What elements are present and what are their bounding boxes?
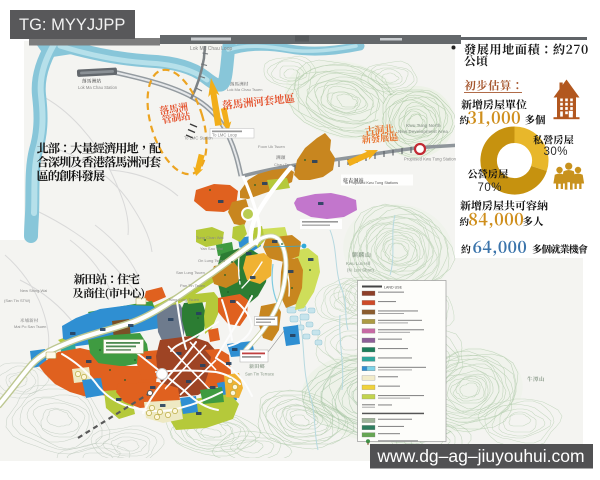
svg-text:New Development Area: New Development Area	[398, 129, 448, 134]
svg-text:(San Tin STW): (San Tin STW)	[4, 298, 31, 303]
svg-text:Proposed Kwu Tung Station: Proposed Kwu Tung Station	[404, 157, 457, 162]
svg-text:Tung Chan Wai: Tung Chan Wai	[196, 235, 224, 240]
svg-text:Mai Po San Tsuen: Mai Po San Tsuen	[14, 324, 46, 329]
svg-text:Kwu Lun Hill: Kwu Lun Hill	[346, 261, 370, 266]
svg-text:To LMC Loop: To LMC Loop	[212, 133, 238, 138]
svg-text:LAND USE: LAND USE	[384, 286, 403, 290]
svg-text:Lok Ma Chau Station: Lok Ma Chau Station	[78, 85, 118, 90]
svg-text:www.dg–ag–jiuyouhui.com: www.dg–ag–jiuyouhui.com	[376, 446, 584, 466]
svg-text:Tsing Lung Tsuen: Tsing Lung Tsuen	[168, 297, 199, 302]
svg-text:Lok Ma Chau Tsuen: Lok Ma Chau Tsuen	[227, 87, 263, 92]
svg-text:San Lung Tsuen: San Lung Tsuen	[176, 270, 205, 275]
svg-text:New Shing Wai: New Shing Wai	[20, 288, 47, 293]
svg-text:San Tin Terrace: San Tin Terrace	[245, 372, 275, 377]
svg-text:On Lung Tsuen: On Lung Tsuen	[198, 258, 225, 263]
svg-text:Foon Uk Tsuen: Foon Uk Tsuen	[258, 144, 285, 149]
svg-text:Yan Sau Wai: Yan Sau Wai	[200, 246, 223, 251]
svg-text:70%: 70%	[478, 182, 503, 194]
svg-text:Kwu Tung North: Kwu Tung North	[406, 123, 441, 128]
svg-text:To Proposed Kwu Tung Stations: To Proposed Kwu Tung Stations	[344, 181, 398, 185]
svg-text:TG: MYYJJPP: TG: MYYJJPP	[19, 16, 125, 34]
svg-text:(Ki Lun Shan): (Ki Lun Shan)	[347, 268, 374, 273]
svg-text:Chau Tau: Chau Tau	[274, 162, 291, 167]
svg-text:Lok Ma Chau Loop: Lok Ma Chau Loop	[190, 46, 232, 52]
svg-text:Pan Tin Tsuen: Pan Tin Tsuen	[180, 283, 205, 288]
svg-text:30%: 30%	[544, 146, 569, 158]
svg-text:To LMC Station: To LMC Station	[184, 136, 213, 141]
